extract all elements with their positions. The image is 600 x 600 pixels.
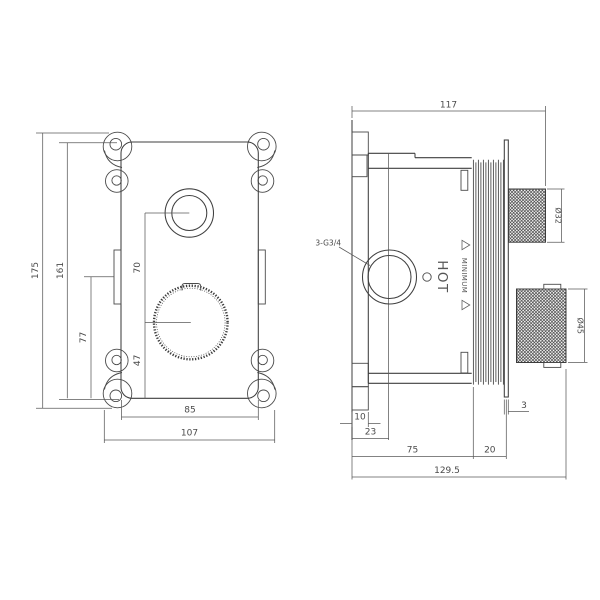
- lower-knob-front: [154, 284, 228, 360]
- dim-knob-to-bottom: 47: [133, 355, 143, 366]
- dim-tab-width: 10: [354, 413, 366, 423]
- hot-label: HOT: [434, 260, 450, 294]
- dim-trim-thickness: 3: [521, 401, 527, 411]
- dim-rib-depth: 20: [484, 446, 496, 456]
- dim-knob-centers: 70: [133, 262, 143, 274]
- lower-knob-side: [517, 284, 567, 367]
- mounting-ear-tabs: [106, 170, 274, 372]
- adjustment-ribs: [473, 160, 503, 385]
- back-plate-tabs: [352, 132, 368, 410]
- dim-slot-to-bottom: 77: [79, 332, 89, 343]
- port-thread-label: 3-G3/4: [315, 239, 341, 248]
- front-view: 175 161 77 70 47 85 107: [31, 132, 276, 443]
- dim-overall-depth: 129.5: [434, 466, 460, 476]
- upper-knob-side: [509, 189, 546, 242]
- minimum-label: MINIMUM: [460, 258, 468, 293]
- side-view: 3-G3/4 HOT MINIMUM 117 Ø32 Ø45 3: [315, 101, 587, 480]
- side-slot-left: [114, 250, 121, 304]
- dim-depth-117: 117: [440, 101, 457, 111]
- minimum-marker-triangle-top: [462, 240, 470, 249]
- port-leader-line: [339, 247, 370, 266]
- minimum-marker-triangle-bottom: [462, 300, 470, 309]
- dim-port-offset: 23: [365, 428, 376, 438]
- dim-body-depth: 75: [407, 446, 418, 456]
- dim-overall-height: 175: [31, 262, 41, 279]
- dim-body-height: 161: [56, 262, 66, 279]
- mounting-ear-lobes: [103, 132, 276, 408]
- technical-drawing-sheet: 175 161 77 70 47 85 107: [0, 0, 600, 600]
- trim-plate: [504, 140, 508, 397]
- inlet-port: [363, 250, 417, 304]
- dim-upper-knob-diameter: Ø32: [554, 207, 564, 223]
- valve-body-side: [368, 153, 471, 383]
- front-view-dimensions: 175 161 77 70 47 85 107: [31, 133, 275, 443]
- shower-valve-drawing: 175 161 77 70 47 85 107: [0, 0, 600, 600]
- dim-lower-knob-diameter: Ø45: [576, 317, 586, 333]
- side-slot-right: [258, 250, 265, 304]
- indicator-dot: [423, 273, 431, 281]
- dim-overall-width: 107: [181, 429, 198, 439]
- dim-body-width: 85: [184, 406, 195, 416]
